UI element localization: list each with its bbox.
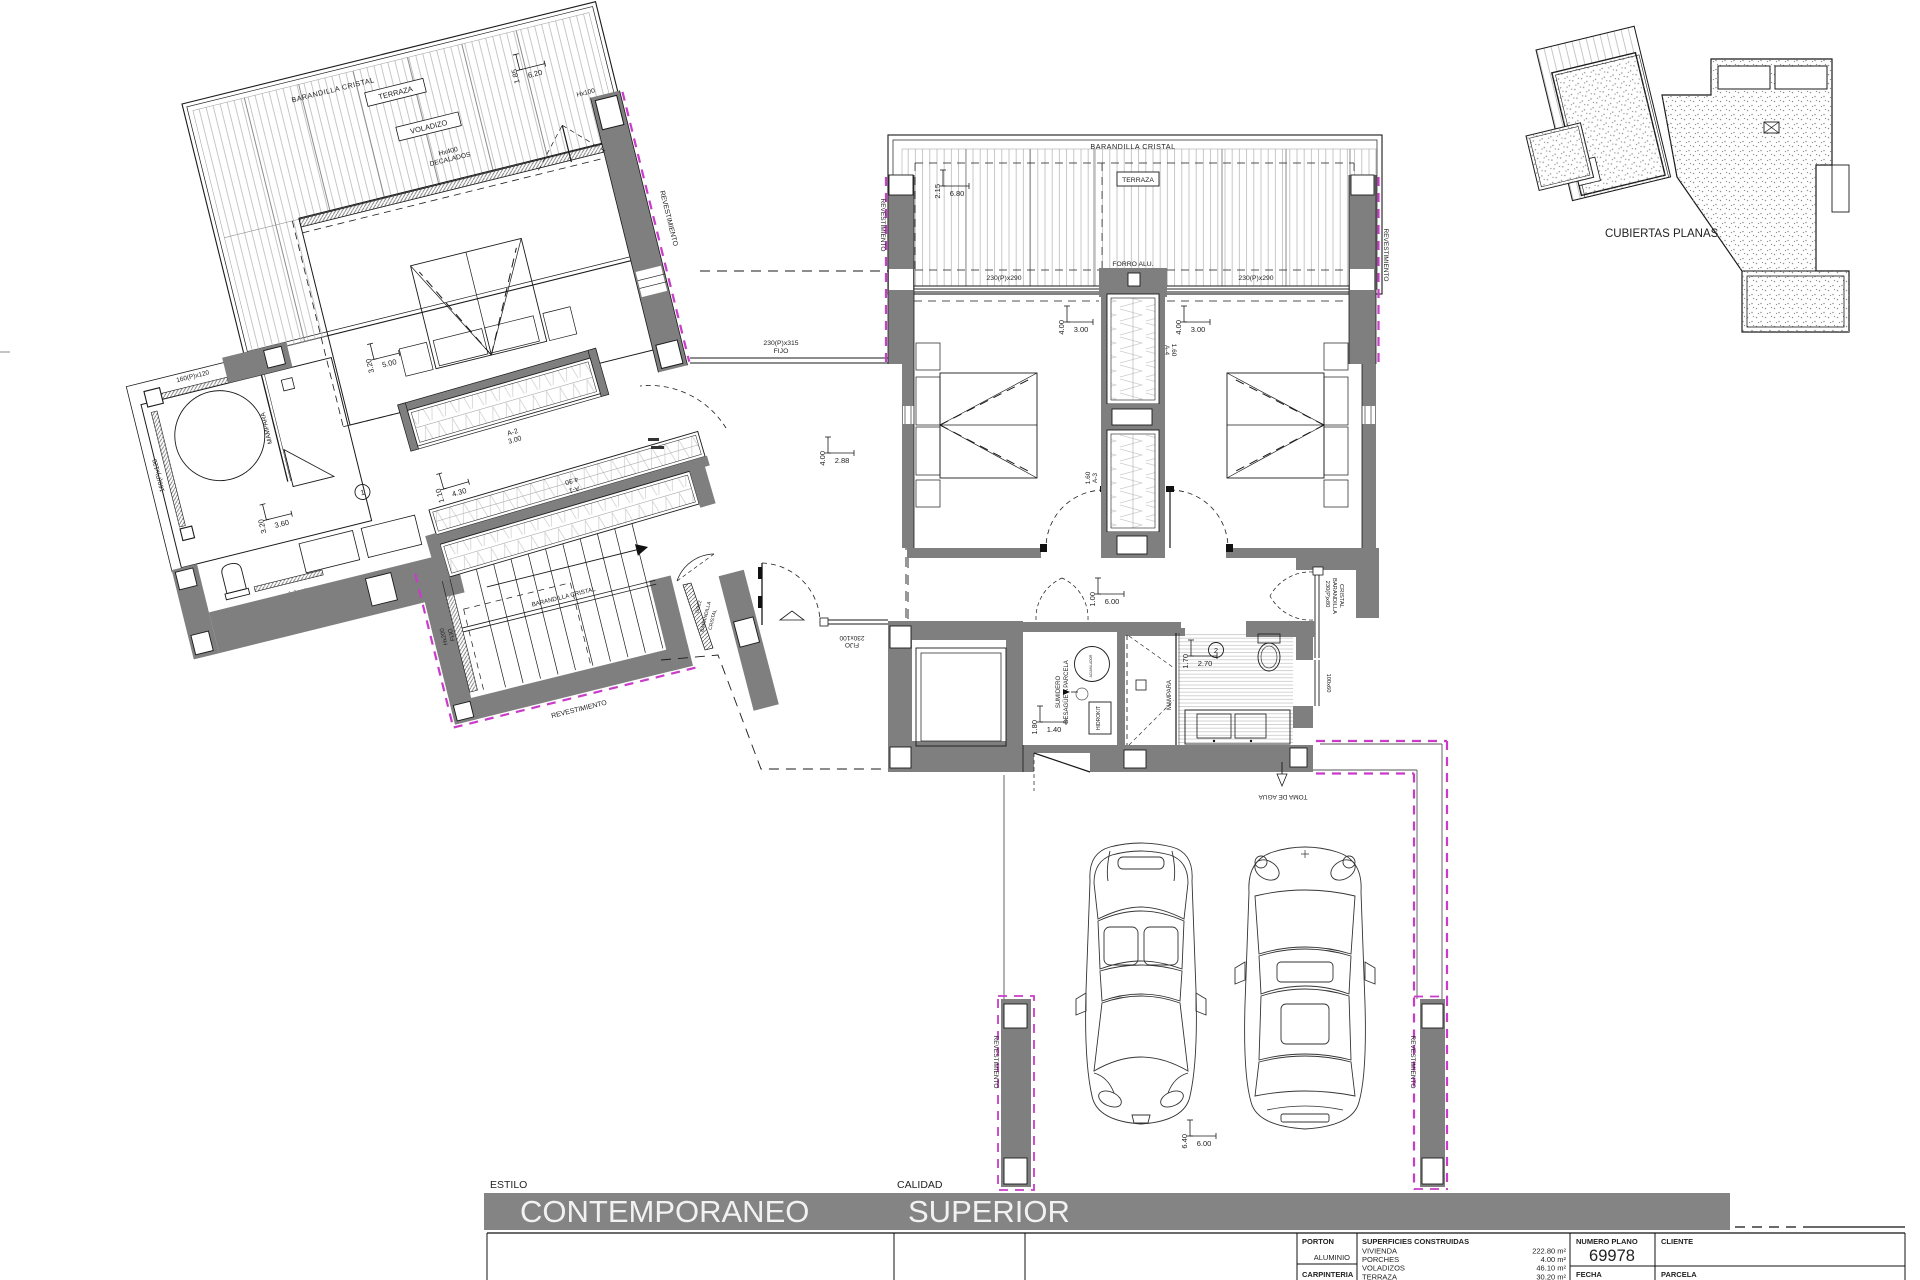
svg-text:FORRO ALU.: FORRO ALU.	[1112, 261, 1153, 268]
svg-text:230(P)x290: 230(P)x290	[1238, 275, 1273, 282]
svg-text:FIJO: FIJO	[845, 641, 859, 648]
svg-text:1.80: 1.80	[1030, 720, 1039, 735]
svg-text:6.80: 6.80	[950, 189, 965, 198]
svg-text:PORTON: PORTON	[1302, 1237, 1334, 1246]
svg-text:230(P)x80: 230(P)x80	[1324, 581, 1330, 608]
svg-text:CRISTAL: CRISTAL	[1338, 584, 1344, 609]
svg-text:A-4: A-4	[1163, 345, 1170, 356]
svg-text:REVESTIMIENTO: REVESTIMIENTO	[1409, 1036, 1416, 1089]
svg-text:230(P)x315: 230(P)x315	[763, 340, 798, 347]
svg-text:ALUMINIO: ALUMINIO	[1314, 1253, 1350, 1262]
svg-text:SUMIDERO: SUMIDERO	[1056, 676, 1062, 709]
svg-text:TERRAZA: TERRAZA	[1362, 1272, 1397, 1280]
svg-text:230x100: 230x100	[839, 634, 864, 641]
svg-text:1.40: 1.40	[1047, 725, 1062, 734]
svg-text:100x60: 100x60	[1325, 673, 1331, 692]
svg-text:6.40: 6.40	[1180, 1134, 1189, 1149]
svg-text:BARANDILLA: BARANDILLA	[1331, 578, 1337, 614]
svg-text:REVESTIMIENTO: REVESTIMIENTO	[879, 199, 886, 252]
svg-text:CARPINTERIA: CARPINTERIA	[1302, 1270, 1354, 1279]
svg-text:CLIENTE: CLIENTE	[1661, 1237, 1693, 1246]
svg-text:6.00: 6.00	[1105, 597, 1120, 606]
svg-text:FIJO: FIJO	[774, 348, 789, 355]
svg-text:30.20 m²: 30.20 m²	[1536, 1272, 1566, 1280]
svg-text:3.00: 3.00	[1074, 325, 1089, 334]
svg-text:MAMPARA: MAMPARA	[1167, 680, 1173, 710]
svg-text:PARCELA: PARCELA	[1661, 1270, 1697, 1279]
svg-text:4.00: 4.00	[1057, 320, 1066, 335]
svg-text:69978: 69978	[1589, 1247, 1635, 1265]
svg-text:4.00: 4.00	[818, 451, 827, 466]
svg-text:2.88: 2.88	[835, 456, 850, 465]
svg-text:CUBIERTAS PLANAS: CUBIERTAS PLANAS	[1605, 228, 1719, 240]
svg-text:230(P)x290: 230(P)x290	[986, 275, 1021, 282]
svg-text:2.15: 2.15	[933, 184, 942, 199]
svg-text:SUPERIOR: SUPERIOR	[908, 1194, 1070, 1229]
svg-text:3.00: 3.00	[1191, 325, 1206, 334]
svg-text:2: 2	[1214, 646, 1218, 655]
svg-text:CONTEMPORANEO: CONTEMPORANEO	[520, 1194, 809, 1229]
svg-text:ACUMULADOR: ACUMULADOR	[1089, 654, 1093, 677]
svg-text:TOMA DE AGUA: TOMA DE AGUA	[1258, 793, 1308, 800]
svg-text:6.00: 6.00	[1197, 1139, 1212, 1148]
svg-text:1.00: 1.00	[1088, 592, 1097, 607]
svg-text:BARANDILLA CRISTAL: BARANDILLA CRISTAL	[1090, 142, 1175, 151]
svg-text:2.70: 2.70	[1198, 659, 1213, 668]
svg-text:REVESTIMIENTO: REVESTIMIENTO	[992, 1036, 999, 1089]
svg-text:1.60: 1.60	[1170, 344, 1177, 357]
svg-text:4.00: 4.00	[1174, 320, 1183, 335]
svg-text:REVESTIMIENTO: REVESTIMIENTO	[1382, 229, 1389, 282]
svg-text:1.70: 1.70	[1181, 654, 1190, 669]
svg-text:NUMERO PLANO: NUMERO PLANO	[1576, 1237, 1638, 1246]
svg-text:A-3: A-3	[1092, 473, 1099, 484]
svg-text:HIDROKIT: HIDROKIT	[1096, 706, 1102, 730]
svg-text:TERRAZA: TERRAZA	[1122, 177, 1154, 184]
svg-text:FECHA: FECHA	[1576, 1270, 1602, 1279]
svg-text:CALIDAD: CALIDAD	[897, 1179, 943, 1191]
svg-text:SUPERFICIES CONSTRUIDAS: SUPERFICIES CONSTRUIDAS	[1362, 1237, 1469, 1246]
svg-text:1.60: 1.60	[1085, 471, 1092, 484]
svg-text:ESTILO: ESTILO	[490, 1179, 527, 1191]
